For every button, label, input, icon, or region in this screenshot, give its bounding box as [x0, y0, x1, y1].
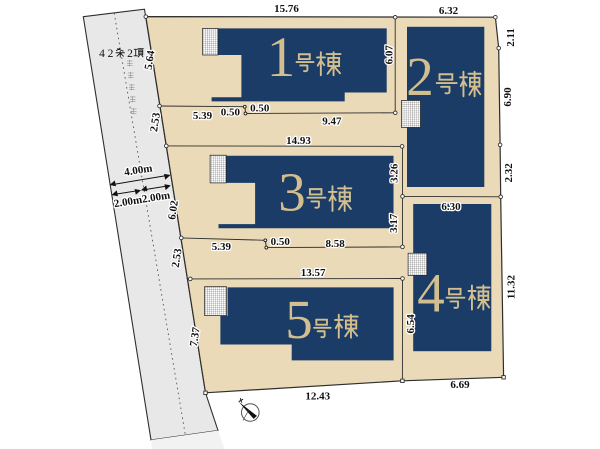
svg-text:2: 2: [127, 48, 133, 60]
svg-text:4: 4: [417, 263, 445, 324]
svg-text:2.32: 2.32: [503, 163, 515, 183]
svg-text:5: 5: [285, 289, 313, 350]
svg-text:5.39: 5.39: [212, 241, 232, 253]
svg-text:0.50: 0.50: [271, 236, 291, 248]
svg-text:8.58: 8.58: [325, 238, 345, 250]
svg-text:6.54: 6.54: [405, 314, 417, 334]
svg-text:6.90: 6.90: [502, 87, 514, 107]
svg-text:15.76: 15.76: [274, 3, 299, 15]
svg-text:0.50: 0.50: [221, 107, 241, 119]
svg-text:5.39: 5.39: [193, 110, 213, 122]
svg-text:3: 3: [278, 162, 306, 223]
svg-text:3.17: 3.17: [388, 213, 400, 233]
svg-text:2: 2: [108, 48, 114, 60]
svg-text:6.69: 6.69: [450, 379, 470, 391]
svg-text:13.57: 13.57: [301, 267, 326, 279]
svg-text:4: 4: [99, 48, 105, 60]
svg-text:14.93: 14.93: [286, 135, 311, 147]
svg-text:2: 2: [406, 46, 434, 107]
svg-text:6.07: 6.07: [384, 45, 396, 65]
svg-text:6.30: 6.30: [441, 201, 461, 213]
svg-text:11.32: 11.32: [506, 275, 518, 300]
svg-text:0.50: 0.50: [250, 102, 270, 114]
svg-text:6.32: 6.32: [439, 5, 459, 17]
svg-text:9.47: 9.47: [322, 116, 342, 128]
svg-text:3.26: 3.26: [389, 163, 401, 183]
svg-text:12.43: 12.43: [305, 391, 330, 403]
svg-text:2.11: 2.11: [505, 28, 517, 47]
svg-text:1: 1: [267, 26, 296, 89]
